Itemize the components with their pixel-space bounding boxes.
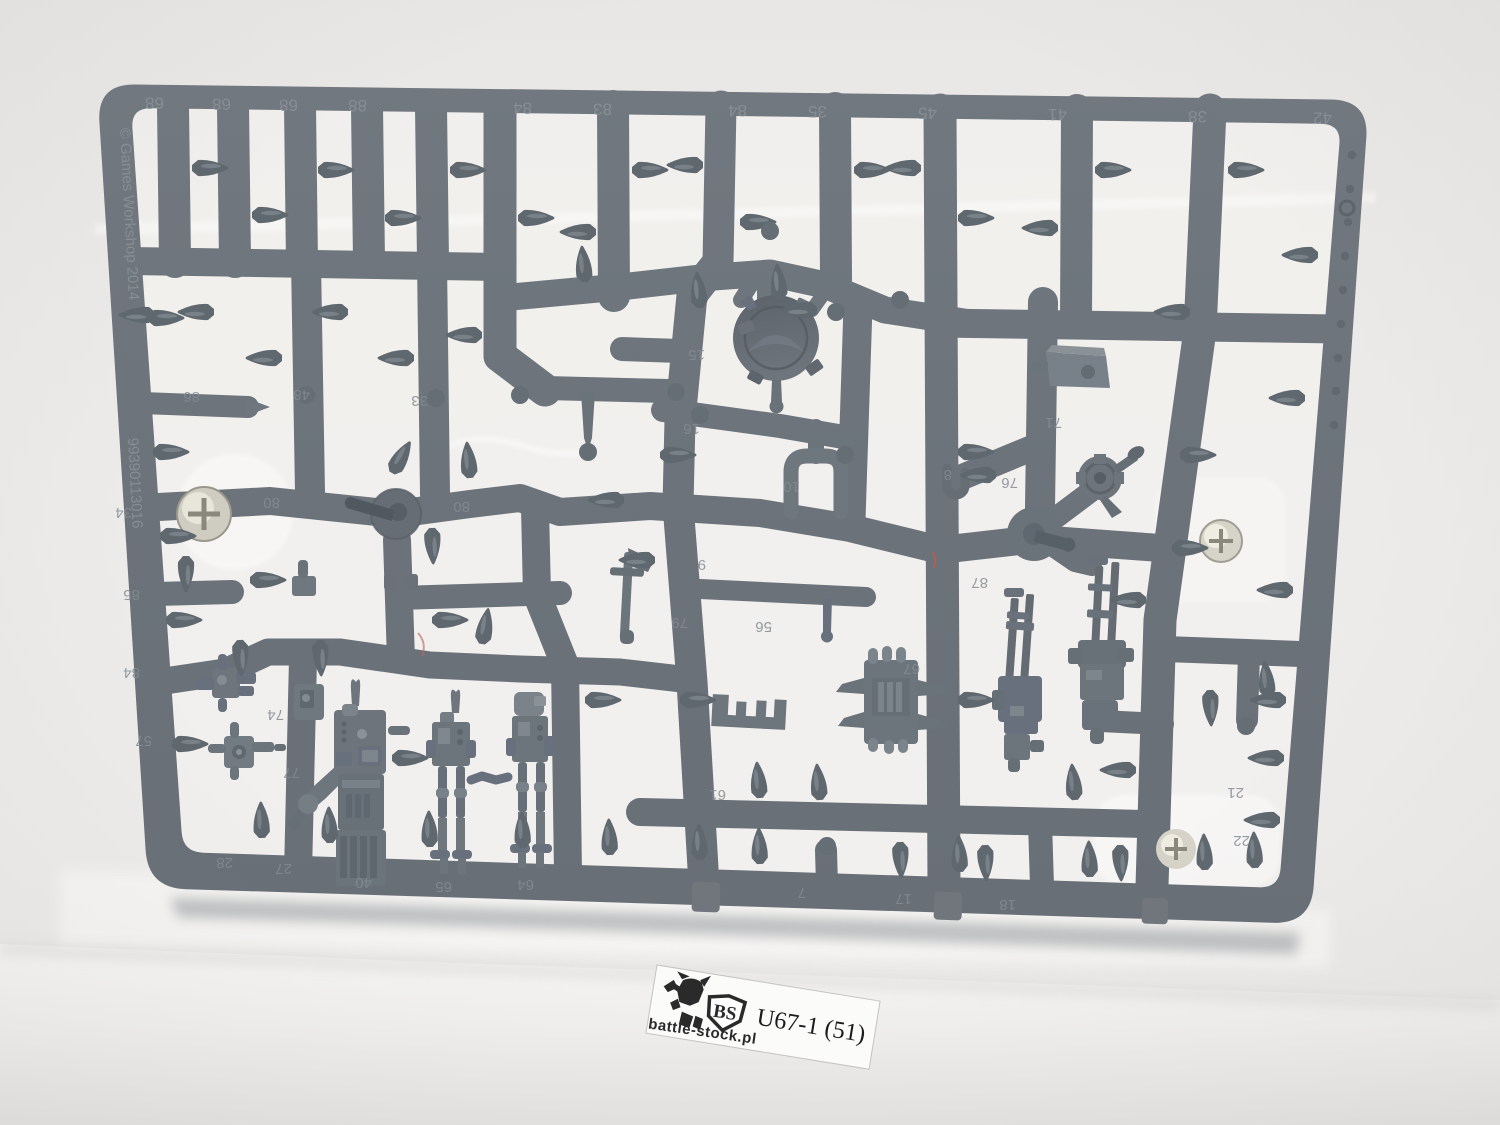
svg-text:BS: BS	[712, 1001, 738, 1025]
